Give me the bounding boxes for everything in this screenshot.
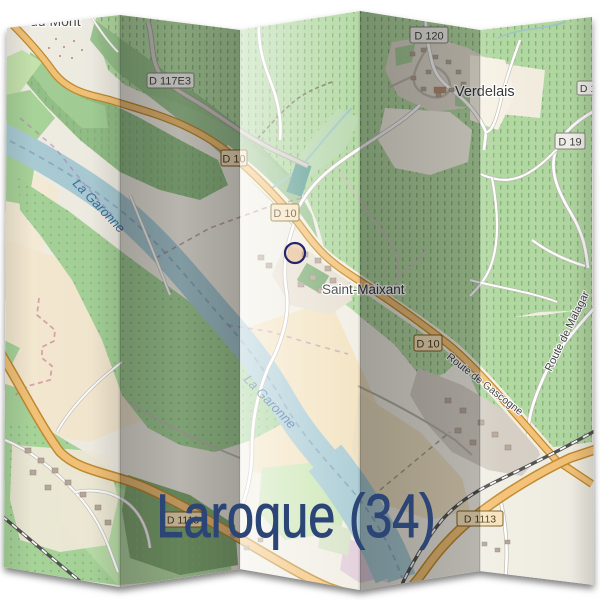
- svg-text:Laroque (34): Laroque (34): [156, 482, 435, 550]
